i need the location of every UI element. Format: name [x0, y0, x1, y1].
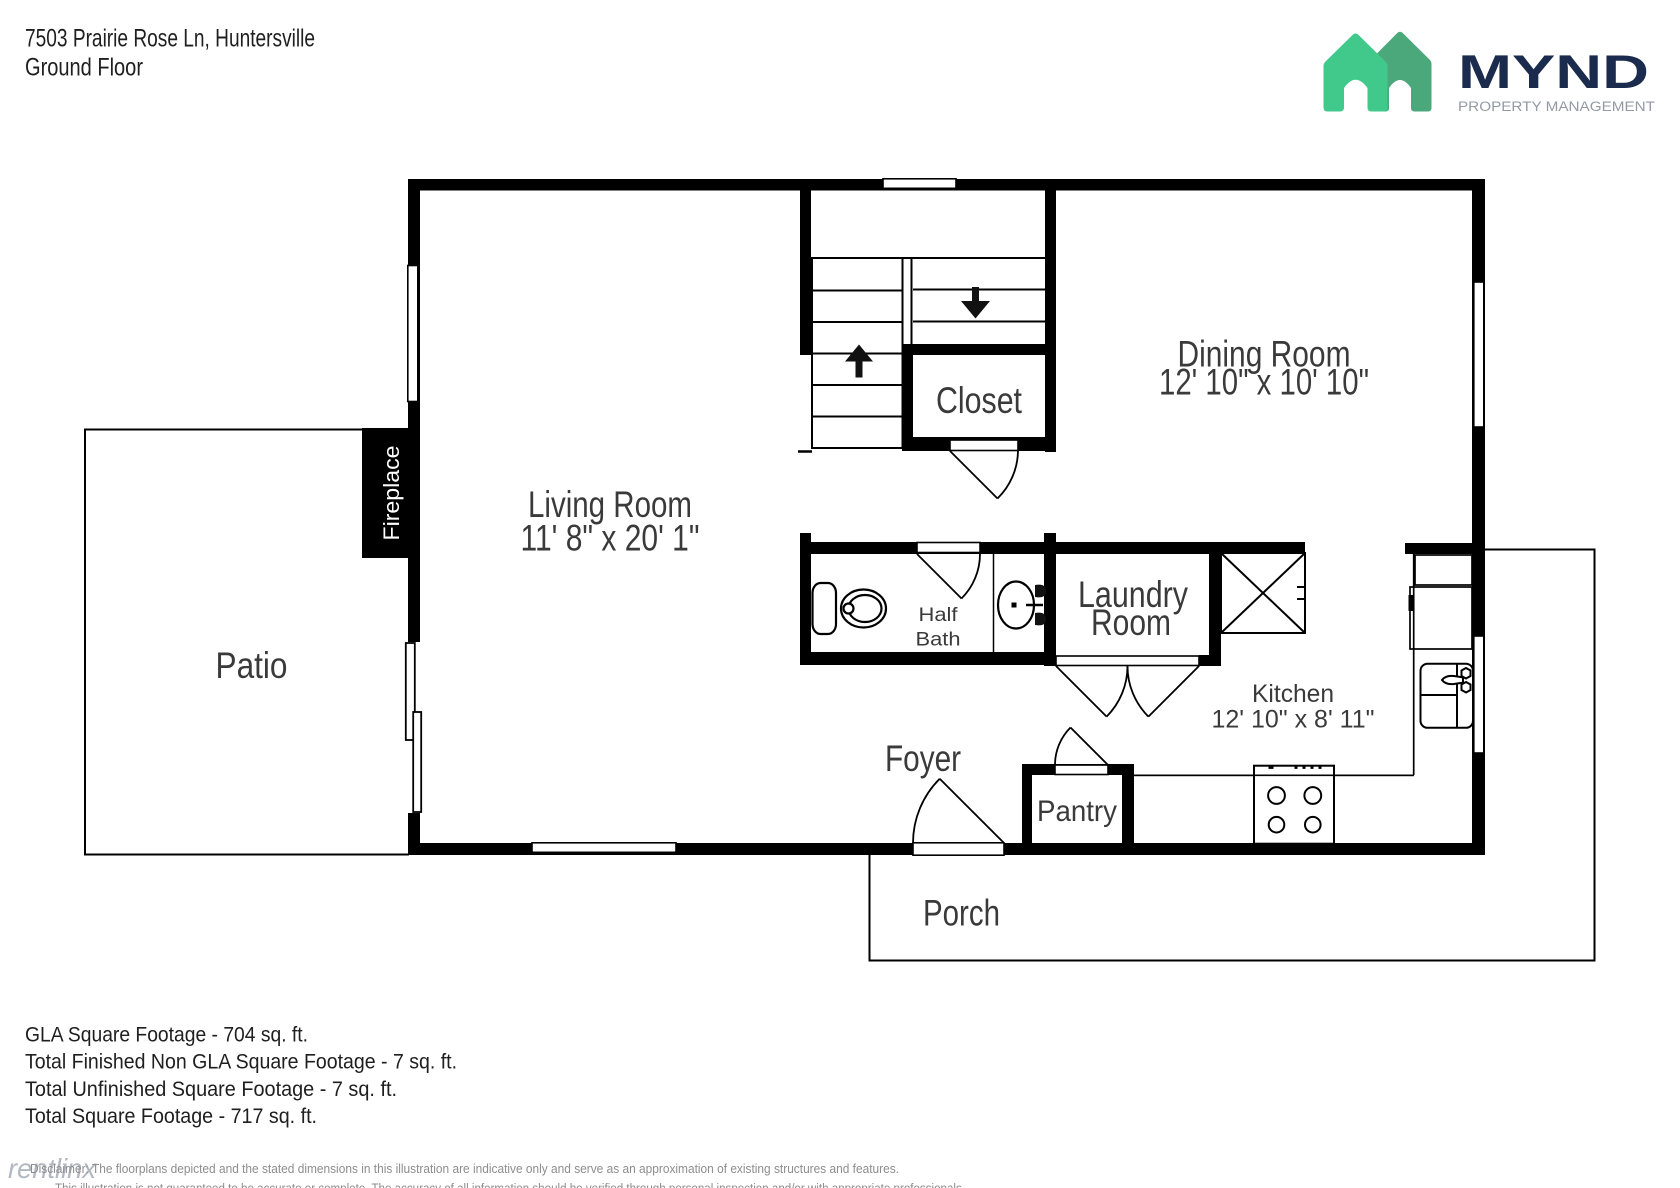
- svg-text:PROPERTY MANAGEMENT: PROPERTY MANAGEMENT: [1458, 99, 1655, 115]
- svg-text:Total Square Footage - 717 sq.: Total Square Footage - 717 sq. ft.: [25, 1104, 317, 1128]
- svg-text:11' 8" x 20' 1": 11' 8" x 20' 1": [521, 518, 700, 559]
- svg-text:This illustration is not guara: This illustration is not guaranteed to b…: [55, 1182, 965, 1188]
- svg-text:Bath: Bath: [916, 629, 961, 651]
- svg-text:GLA Square Footage - 704 sq. f: GLA Square Footage - 704 sq. ft.: [25, 1023, 308, 1047]
- svg-text:Half: Half: [919, 604, 959, 626]
- svg-text:12' 10" x 10' 10": 12' 10" x 10' 10": [1159, 362, 1369, 403]
- svg-text:Kitchen: Kitchen: [1252, 680, 1334, 708]
- svg-text:MYND: MYND: [1458, 45, 1649, 98]
- svg-text:Porch: Porch: [923, 893, 1000, 934]
- svg-text:Total Finished Non GLA Square: Total Finished Non GLA Square Footage - …: [25, 1050, 457, 1074]
- svg-text:Foyer: Foyer: [885, 738, 961, 779]
- svg-text:Closet: Closet: [936, 380, 1023, 421]
- svg-text:Fireplace: Fireplace: [379, 446, 404, 541]
- svg-text:Disclaimer: The floorplans dep: Disclaimer: The floorplans depicted and …: [30, 1162, 899, 1176]
- svg-text:Pantry: Pantry: [1037, 795, 1117, 828]
- svg-text:Total Unfinished Square Footag: Total Unfinished Square Footage - 7 sq. …: [25, 1077, 397, 1101]
- svg-text:12' 10" x 8' 11": 12' 10" x 8' 11": [1212, 706, 1375, 734]
- svg-text:7503 Prairie Rose Ln, Huntersv: 7503 Prairie Rose Ln, Huntersville: [25, 25, 315, 53]
- svg-text:Patio: Patio: [216, 645, 288, 686]
- svg-text:Room: Room: [1091, 602, 1171, 643]
- svg-text:Ground Floor: Ground Floor: [25, 54, 143, 82]
